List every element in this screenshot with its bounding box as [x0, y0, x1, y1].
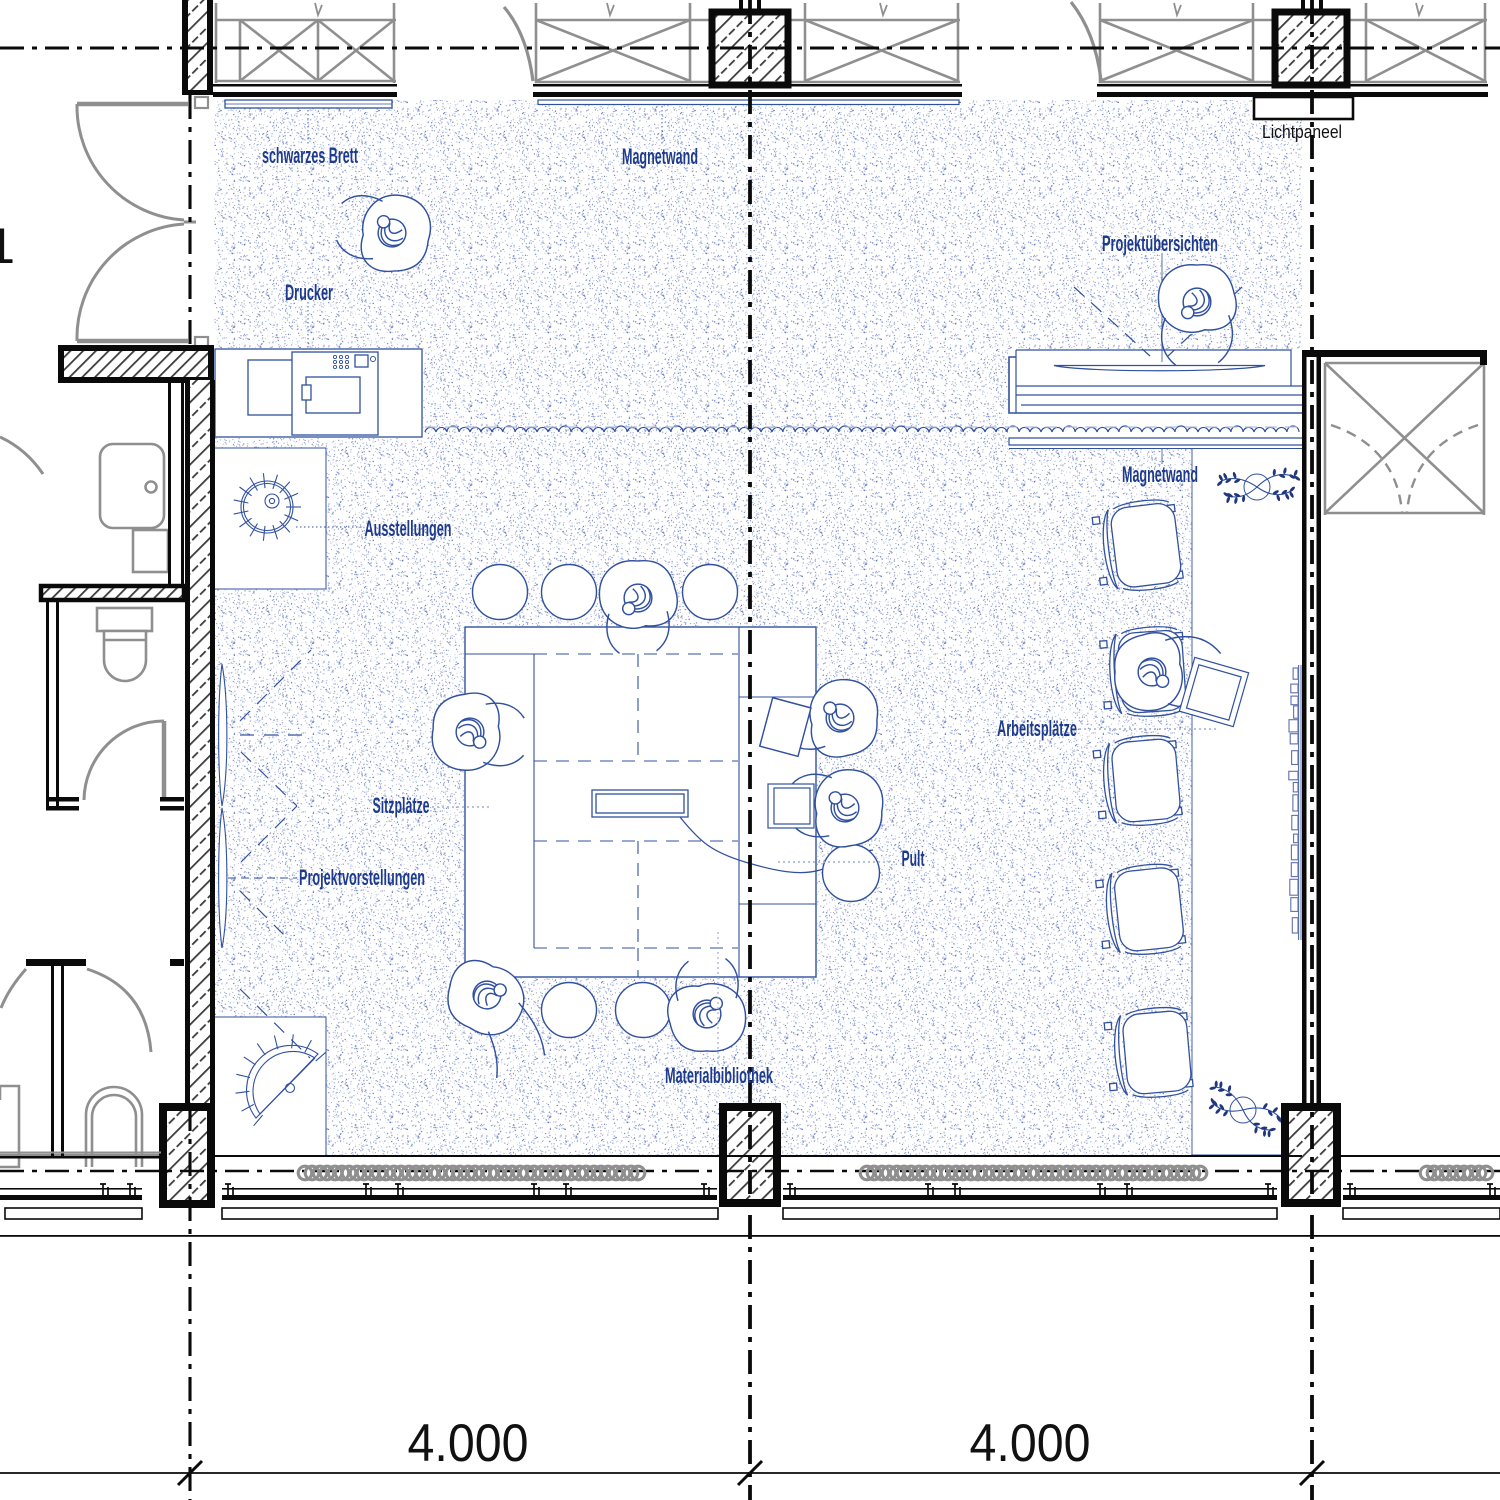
- svg-text:schwarzes Brett: schwarzes Brett: [262, 143, 358, 168]
- svg-text:4.000: 4.000: [408, 1414, 529, 1473]
- svg-text:Projektvorstellungen: Projektvorstellungen: [299, 865, 425, 890]
- svg-text:Magnetwand: Magnetwand: [622, 144, 698, 169]
- svg-text:Drucker: Drucker: [285, 280, 333, 305]
- svg-text:1: 1: [0, 218, 15, 274]
- svg-text:Sitzplätze: Sitzplätze: [373, 793, 430, 818]
- svg-text:Ausstellungen: Ausstellungen: [365, 516, 452, 541]
- svg-text:Magnetwand: Magnetwand: [1122, 462, 1198, 487]
- svg-text:Projektübersichten: Projektübersichten: [1102, 231, 1218, 256]
- svg-text:Materialbibliothek: Materialbibliothek: [665, 1063, 773, 1088]
- svg-text:4.000: 4.000: [970, 1414, 1091, 1473]
- svg-text:Lichtpaneel: Lichtpaneel: [1262, 122, 1342, 142]
- svg-text:Pult: Pult: [902, 846, 925, 871]
- svg-text:Arbeitsplätze: Arbeitsplätze: [997, 716, 1077, 741]
